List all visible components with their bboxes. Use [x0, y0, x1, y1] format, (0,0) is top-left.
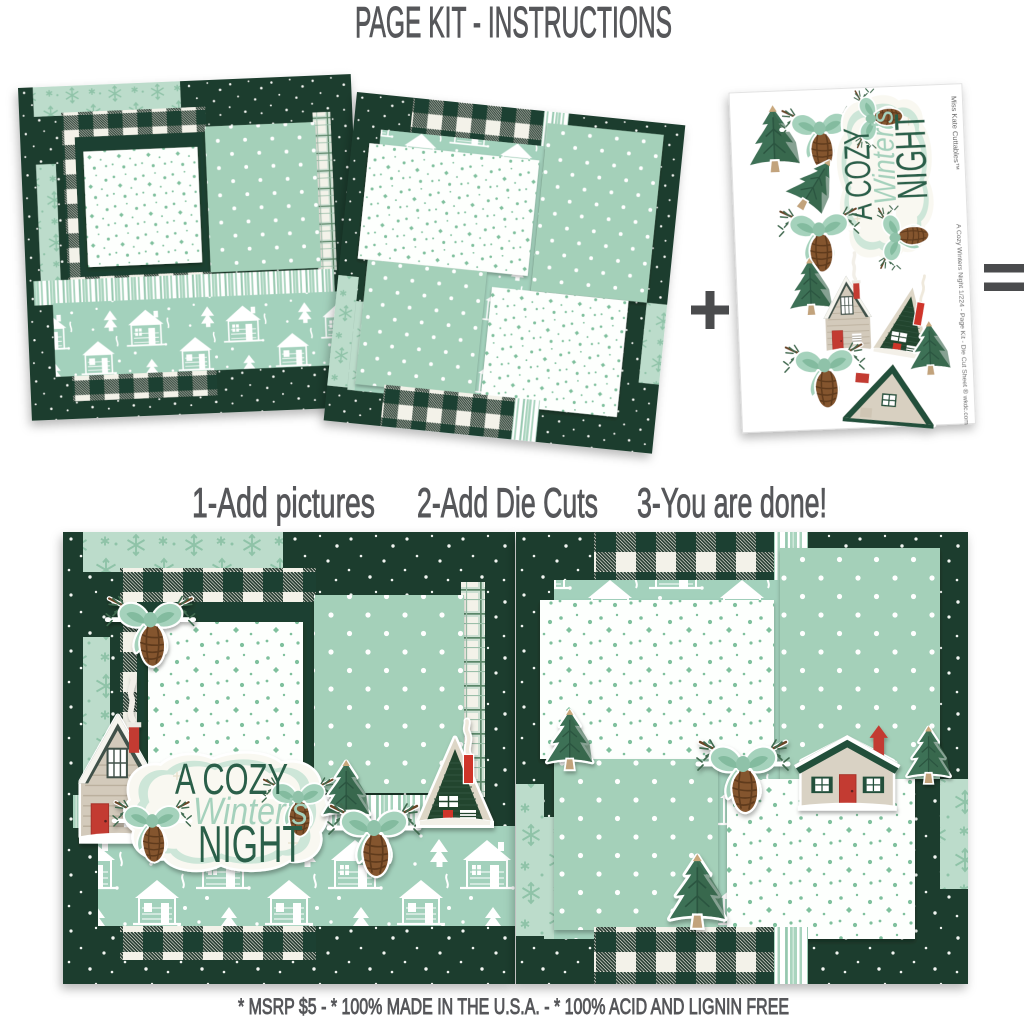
svg-text:3-You are done!: 3-You are done! — [637, 479, 827, 526]
svg-text:1-Add pictures: 1-Add pictures — [192, 479, 375, 526]
svg-text:2-Add Die Cuts: 2-Add Die Cuts — [417, 479, 598, 526]
svg-text:PAGE KIT - INSTRUCTIONS: PAGE KIT - INSTRUCTIONS — [355, 0, 672, 47]
svg-text:* MSRP $5 - * 100% MADE IN T: * MSRP $5 - * 100% MADE IN THE U.S.A. - … — [238, 994, 789, 1019]
